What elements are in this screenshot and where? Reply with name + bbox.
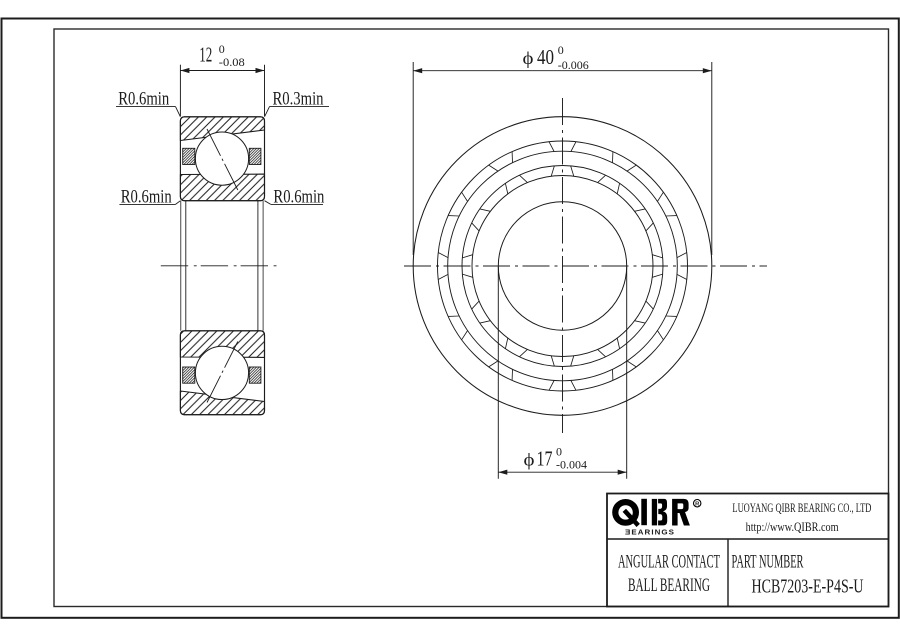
svg-text:ƎEARINGS: ƎEARINGS [625,528,675,537]
svg-text:12: 12 [199,43,212,67]
svg-text:-0.004: -0.004 [556,459,587,471]
svg-text:http://www.QIBR.com: http://www.QIBR.com [746,520,839,534]
svg-text:ANGULAR CONTACT: ANGULAR CONTACT [618,552,720,573]
svg-text:0: 0 [556,446,562,458]
svg-text:ϕ: ϕ [523,48,534,68]
svg-text:ϕ: ϕ [524,450,535,470]
svg-text:-0.08: -0.08 [219,57,245,69]
svg-text:HCB7203-E-P4S-U: HCB7203-E-P4S-U [752,576,864,598]
svg-text:17: 17 [537,446,553,470]
svg-text:0: 0 [219,44,225,56]
svg-text:LUOYANG QIBR BEARING CO., LTD: LUOYANG QIBR BEARING CO., LTD [732,501,871,515]
svg-text:PART NUMBER: PART NUMBER [732,552,804,573]
svg-text:0: 0 [558,45,564,57]
svg-text:BALL BEARING: BALL BEARING [628,575,710,596]
svg-text:-0.006: -0.006 [558,60,589,72]
svg-text:40: 40 [537,45,554,69]
